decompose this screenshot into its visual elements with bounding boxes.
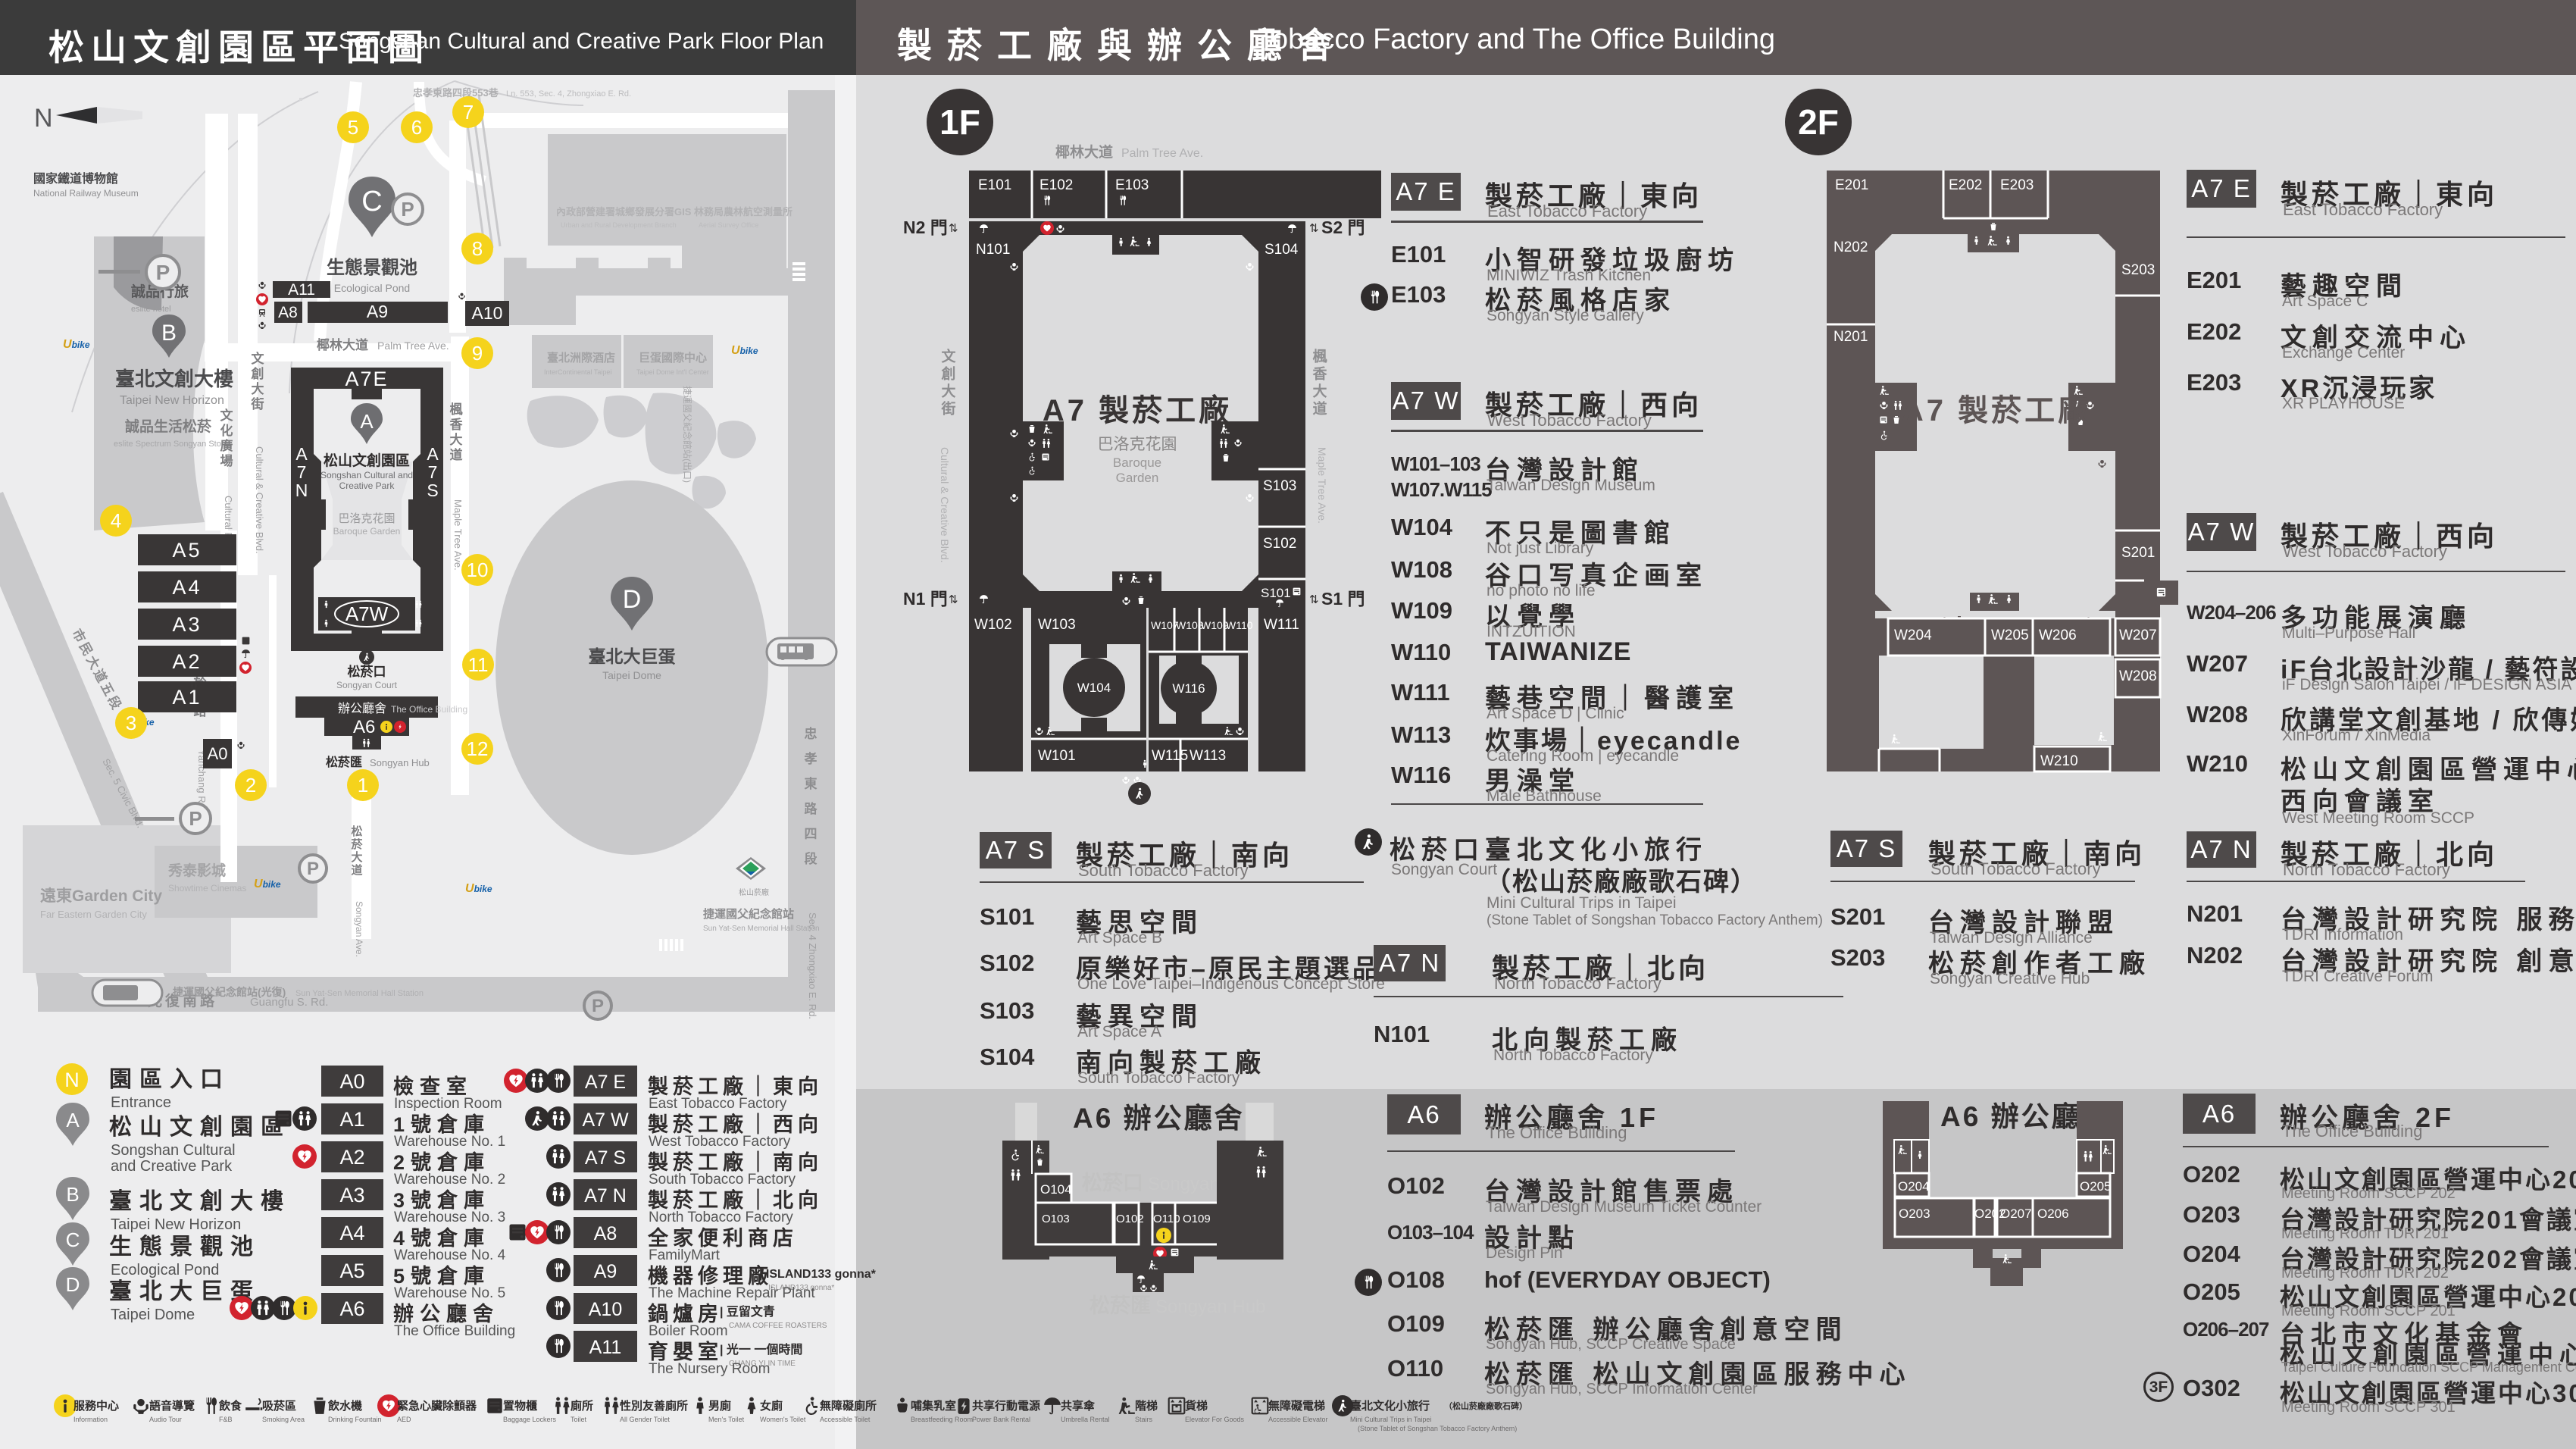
- svg-text:The Machine Repair Plant: The Machine Repair Plant: [649, 1285, 815, 1301]
- svg-text:Information: Information: [73, 1416, 108, 1423]
- svg-text:臺北文創大樓: 臺北文創大樓: [109, 1188, 291, 1214]
- svg-text:緊急心臟除顫器: 緊急心臟除顫器: [397, 1399, 477, 1413]
- svg-text:內政部營建署城鄉發展分署GIS: 內政部營建署城鄉發展分署GIS: [556, 206, 692, 218]
- svg-text:S203: S203: [2121, 262, 2155, 278]
- svg-text:InterContinental Taipei: InterContinental Taipei: [544, 368, 611, 376]
- svg-text:East Tobacco Factory: East Tobacco Factory: [649, 1096, 787, 1112]
- svg-text:廁所: 廁所: [571, 1399, 593, 1413]
- svg-text:A: A: [295, 444, 308, 464]
- svg-text:Ubike: Ubike: [731, 344, 758, 357]
- svg-text:Ubike: Ubike: [465, 882, 492, 895]
- svg-text:⇅: ⇅: [1309, 222, 1319, 235]
- svg-text:Mini Cultural Trips in Taipei: Mini Cultural Trips in Taipei: [1350, 1416, 1431, 1423]
- svg-text:A7 W: A7 W: [582, 1109, 629, 1131]
- svg-text:飲食: 飲食: [218, 1399, 242, 1413]
- svg-text:Women's Toilet: Women's Toilet: [760, 1416, 806, 1423]
- svg-text:Inspection Room: Inspection Room: [394, 1096, 502, 1112]
- svg-text:O204: O204: [1898, 1179, 1930, 1194]
- svg-text:椰林大道: 椰林大道: [317, 337, 368, 352]
- svg-text:A: A: [427, 444, 439, 464]
- svg-text:N: N: [64, 1069, 80, 1091]
- svg-text:(Stone Tablet of Songshan Toba: (Stone Tablet of Songshan Tobacco Factor…: [1358, 1425, 1517, 1432]
- svg-text:N101: N101: [976, 242, 1010, 258]
- svg-text:Toilet: Toilet: [571, 1416, 587, 1423]
- svg-text:服務中心: 服務中心: [73, 1399, 119, 1413]
- svg-text:P: P: [592, 996, 604, 1016]
- svg-text:West Tobacco Factory: West Tobacco Factory: [649, 1134, 791, 1150]
- svg-text:FamilyMart: FamilyMart: [649, 1247, 721, 1263]
- svg-text:P: P: [156, 261, 170, 284]
- svg-text:N1 門: N1 門: [903, 589, 948, 609]
- svg-text:3號倉庫: 3號倉庫: [393, 1188, 490, 1212]
- svg-text:Songyan Ave.: Songyan Ave.: [354, 901, 364, 957]
- svg-text:松菸大道: 松菸大道: [350, 825, 363, 877]
- svg-text:W109: W109: [1201, 619, 1229, 631]
- svg-text:W205: W205: [1991, 627, 2029, 643]
- svg-text:E101: E101: [978, 177, 1011, 193]
- svg-text:S: S: [427, 480, 438, 500]
- svg-text:N201: N201: [1834, 329, 1868, 345]
- svg-text:O110: O110: [1153, 1213, 1180, 1225]
- svg-text:A4: A4: [339, 1222, 364, 1244]
- svg-text:8: 8: [472, 237, 483, 260]
- svg-text:W204: W204: [1894, 627, 1932, 643]
- svg-text:哺集乳室: 哺集乳室: [911, 1399, 956, 1413]
- svg-text:2號倉庫: 2號倉庫: [393, 1150, 490, 1174]
- svg-text:E103: E103: [1115, 177, 1149, 193]
- svg-text:林務局農林航空測量所: 林務局農林航空測量所: [694, 206, 792, 218]
- svg-text:Baroque: Baroque: [1113, 455, 1161, 470]
- svg-text:共享行動電源: 共享行動電源: [972, 1399, 1040, 1413]
- svg-text:辦公廳舍: 辦公廳舍: [393, 1302, 499, 1325]
- svg-text:W108: W108: [1176, 619, 1204, 631]
- svg-text:Taipei Dome Int'l Center: Taipei Dome Int'l Center: [636, 368, 709, 376]
- svg-text:Stairs: Stairs: [1135, 1416, 1153, 1423]
- svg-text:生態景觀池: 生態景觀池: [109, 1234, 261, 1260]
- svg-text:Taipei Dome: Taipei Dome: [111, 1307, 195, 1323]
- svg-text:4號倉庫: 4號倉庫: [393, 1226, 490, 1250]
- svg-text:園區入口: 園區入口: [109, 1067, 230, 1092]
- svg-text:O205: O205: [2080, 1179, 2112, 1194]
- svg-text:⇅: ⇅: [949, 222, 958, 235]
- svg-text:O206: O206: [2037, 1206, 2069, 1221]
- svg-text:Songyan Hub: Songyan Hub: [1155, 1297, 1265, 1317]
- svg-text:女廁: 女廁: [760, 1399, 783, 1413]
- svg-text:忠孝東路四段553巷: 忠孝東路四段553巷: [413, 87, 499, 99]
- svg-text:Songyan Court: Songyan Court: [336, 680, 398, 690]
- svg-text:W113: W113: [1190, 748, 1226, 764]
- svg-text:巨蛋國際中心: 巨蛋國際中心: [639, 351, 707, 365]
- svg-text:無障礙廁所: 無障礙廁所: [820, 1399, 877, 1413]
- svg-text:誠品生活松菸: 誠品生活松菸: [125, 418, 212, 435]
- svg-text:A11: A11: [589, 1337, 622, 1358]
- svg-text:A7 製菸工廠: A7 製菸工廠: [1043, 393, 1232, 427]
- svg-text:O102: O102: [1116, 1213, 1144, 1225]
- svg-text:Songshan Cultural and: Songshan Cultural and: [320, 470, 413, 480]
- svg-text:Sun Yat-Sen Memorial Hall Stat: Sun Yat-Sen Memorial Hall Station: [703, 925, 820, 933]
- svg-text:性別友善廁所: 性別友善廁所: [620, 1399, 688, 1413]
- svg-text:eslite hotel: eslite hotel: [131, 305, 171, 314]
- svg-text:A9: A9: [594, 1261, 617, 1282]
- svg-text:Taipei Dome: Taipei Dome: [602, 669, 661, 681]
- svg-text:W102: W102: [974, 617, 1012, 633]
- svg-text:N202: N202: [1834, 239, 1868, 255]
- svg-text:辦公廳舍: 辦公廳舍: [338, 701, 386, 715]
- svg-text:A: A: [66, 1109, 80, 1131]
- svg-text:臺北文化小旅行: 臺北文化小旅行: [1350, 1399, 1430, 1413]
- svg-text:文化廣場: 文化廣場: [218, 408, 233, 469]
- svg-text:飲水機: 飲水機: [327, 1399, 362, 1413]
- svg-text:1號倉庫: 1號倉庫: [393, 1113, 490, 1136]
- svg-text:Accessible Toilet: Accessible Toilet: [820, 1416, 871, 1423]
- svg-text:臺北文創大樓: 臺北文創大樓: [115, 368, 233, 390]
- svg-text:Accessible Elevator: Accessible Elevator: [1268, 1416, 1328, 1423]
- svg-text:Audio Tour: Audio Tour: [149, 1416, 182, 1423]
- svg-text:A0: A0: [339, 1070, 364, 1093]
- svg-text:W207: W207: [2119, 627, 2157, 643]
- svg-text:Sun Yat-Sen Memorial Hall Stat: Sun Yat-Sen Memorial Hall Station: [295, 989, 424, 998]
- svg-text:C: C: [361, 186, 382, 218]
- svg-text:全家便利商店: 全家便利商店: [647, 1226, 798, 1250]
- svg-text:A7 製菸工廠: A7 製菸工廠: [1902, 393, 2091, 427]
- svg-text:F&B: F&B: [219, 1416, 233, 1423]
- svg-text:A: A: [360, 410, 374, 433]
- svg-text:S102: S102: [1263, 536, 1296, 552]
- svg-text:秀泰影城: 秀泰影城: [167, 862, 226, 879]
- svg-text:W101: W101: [1038, 748, 1076, 764]
- svg-text:製菸工廠｜南向: 製菸工廠｜南向: [648, 1150, 823, 1174]
- svg-text:Umbrella Rental: Umbrella Rental: [1061, 1416, 1110, 1423]
- svg-text:W107: W107: [1151, 619, 1179, 631]
- svg-text:遠東Garden City: 遠東Garden City: [40, 887, 162, 905]
- svg-text:W116: W116: [1172, 681, 1205, 696]
- svg-text:D: D: [623, 585, 642, 614]
- svg-text:O104: O104: [1040, 1182, 1072, 1197]
- svg-text:Palm Tree Ave.: Palm Tree Ave.: [1121, 147, 1203, 160]
- svg-text:Baggage Lockers: Baggage Lockers: [503, 1416, 557, 1423]
- svg-text:P: P: [307, 859, 319, 879]
- svg-text:Ecological Pond: Ecological Pond: [111, 1262, 219, 1278]
- svg-text:楓香大道: 楓香大道: [1311, 348, 1328, 418]
- svg-text:捷運國父紀念館站(出口): 捷運國父紀念館站(出口): [682, 386, 693, 483]
- svg-text:S201: S201: [2121, 545, 2155, 561]
- svg-text:B: B: [66, 1183, 79, 1206]
- svg-text:A3: A3: [339, 1184, 364, 1206]
- svg-text:B: B: [161, 321, 177, 346]
- svg-text:Far Eastern Garden City: Far Eastern Garden City: [40, 909, 147, 920]
- svg-text:忠孝東路四段: 忠孝東路四段: [802, 726, 818, 877]
- svg-text:Taipei New Horizon: Taipei New Horizon: [111, 1216, 241, 1233]
- svg-text:椰林大道: 椰林大道: [1055, 143, 1113, 161]
- svg-text:N2 門: N2 門: [903, 218, 948, 237]
- svg-text:捷運國父紀念館站: 捷運國父紀念館站: [703, 907, 794, 921]
- svg-text:O109: O109: [1183, 1213, 1211, 1225]
- svg-text:生態景觀池: 生態景觀池: [327, 257, 417, 278]
- svg-text:1: 1: [358, 774, 368, 796]
- svg-text:W115: W115: [1152, 748, 1188, 764]
- svg-text:11: 11: [468, 653, 489, 676]
- svg-text:檢查室: 檢查室: [393, 1075, 473, 1098]
- svg-text:Cultural & Creative Blvd.: Cultural & Creative Blvd.: [939, 447, 951, 563]
- svg-text:National Railway Museum: National Railway Museum: [33, 188, 139, 199]
- svg-text:Drinking Fountain: Drinking Fountain: [328, 1416, 382, 1423]
- svg-text:A2: A2: [339, 1146, 364, 1169]
- svg-text:臺北洲際酒店: 臺北洲際酒店: [547, 351, 615, 365]
- svg-text:Urban and Rural Development Br: Urban and Rural Development Branch: [561, 221, 677, 229]
- svg-text:Ecological Pond: Ecological Pond: [334, 282, 410, 294]
- svg-text:松山文創園區: 松山文創園區: [109, 1114, 291, 1140]
- svg-text:A2: A2: [172, 650, 202, 673]
- svg-text:製菸工廠｜東向: 製菸工廠｜東向: [648, 1075, 823, 1098]
- svg-text:A10: A10: [472, 303, 503, 323]
- svg-text:CAMA COFFEE ROASTERS: CAMA COFFEE ROASTERS: [729, 1322, 827, 1330]
- svg-text:2: 2: [245, 774, 256, 796]
- svg-text:W104: W104: [1077, 681, 1111, 695]
- svg-text:貨梯: 貨梯: [1185, 1399, 1208, 1413]
- svg-text:P: P: [401, 198, 414, 221]
- svg-text:A6: A6: [339, 1297, 364, 1320]
- svg-text:A3: A3: [172, 613, 202, 636]
- svg-text:6: 6: [411, 116, 422, 139]
- svg-text:Ln. 553, Sec. 4, Zhongxiao E.: Ln. 553, Sec. 4, Zhongxiao E. Rd.: [506, 89, 631, 99]
- svg-text:松菸匯: 松菸匯: [326, 755, 362, 769]
- svg-text:語音導覽: 語音導覽: [149, 1399, 195, 1413]
- svg-text:E102: E102: [1039, 177, 1073, 193]
- svg-text:吸菸區: 吸菸區: [262, 1399, 296, 1413]
- svg-text:E203: E203: [2000, 177, 2034, 193]
- svg-text:Palm Tree Ave.: Palm Tree Ave.: [377, 340, 449, 352]
- svg-text:A10: A10: [589, 1299, 622, 1320]
- svg-text:N: N: [34, 104, 53, 133]
- svg-text:A11: A11: [288, 281, 315, 299]
- svg-text:O103: O103: [1042, 1213, 1070, 1225]
- svg-text:W111: W111: [1264, 617, 1299, 633]
- svg-text:A7 N: A7 N: [584, 1185, 627, 1206]
- svg-text:5: 5: [348, 116, 358, 139]
- svg-text:7: 7: [428, 462, 438, 482]
- svg-text:The Office Building: The Office Building: [394, 1323, 515, 1339]
- svg-text:A6 辦公廳舍: A6 辦公廳舍: [1073, 1102, 1245, 1134]
- svg-text:N: N: [295, 480, 308, 500]
- svg-text:S104: S104: [1265, 242, 1299, 258]
- svg-text:North Tobacco Factory: North Tobacco Factory: [649, 1210, 793, 1225]
- svg-text:Showtime Cinemas: Showtime Cinemas: [168, 883, 246, 893]
- svg-text:Warehouse No. 5: Warehouse No. 5: [394, 1285, 505, 1301]
- svg-text:Power Bank Rental: Power Bank Rental: [972, 1416, 1030, 1423]
- svg-text:South Tobacco Factory: South Tobacco Factory: [649, 1172, 796, 1188]
- svg-text:A7 E: A7 E: [585, 1072, 626, 1093]
- svg-text:W210: W210: [2040, 753, 2078, 769]
- svg-text:Warehouse No. 1: Warehouse No. 1: [394, 1134, 505, 1150]
- svg-text:Cultural & Creative Blvd.: Cultural & Creative Blvd.: [254, 446, 265, 554]
- svg-text:A5: A5: [172, 539, 202, 562]
- svg-text:| ISLAND133 gonna*: | ISLAND133 gonna*: [759, 1268, 877, 1281]
- svg-text:7: 7: [297, 462, 307, 482]
- svg-text:Entrance: Entrance: [111, 1094, 171, 1111]
- svg-text:A9: A9: [367, 302, 388, 321]
- svg-text:The Nursery Room: The Nursery Room: [649, 1361, 771, 1377]
- svg-text:Breastfeeding Room: Breastfeeding Room: [911, 1416, 973, 1423]
- svg-text:and Creative Park: and Creative Park: [111, 1158, 233, 1175]
- svg-text:Taipei New Horizon: Taipei New Horizon: [120, 394, 224, 407]
- svg-text:A4: A4: [172, 576, 202, 599]
- svg-text:Ubike: Ubike: [63, 338, 90, 351]
- svg-text:Aerial Survey Office: Aerial Survey Office: [699, 221, 758, 229]
- svg-text:巴洛克花園: 巴洛克花園: [338, 512, 395, 525]
- svg-text:⇅: ⇅: [949, 593, 958, 606]
- svg-text:Warehouse No. 4: Warehouse No. 4: [394, 1247, 506, 1263]
- svg-text:Ubike: Ubike: [254, 878, 281, 890]
- svg-text:Creative Park: Creative Park: [339, 480, 395, 491]
- svg-text:階梯: 階梯: [1135, 1399, 1158, 1413]
- svg-text:A7 S: A7 S: [585, 1147, 626, 1169]
- svg-text:All Gender Toilet: All Gender Toilet: [620, 1416, 670, 1423]
- svg-text:Warehouse No. 2: Warehouse No. 2: [394, 1172, 505, 1188]
- svg-text:Warehouse No. 3: Warehouse No. 3: [394, 1210, 505, 1225]
- svg-text:S103: S103: [1263, 478, 1296, 494]
- svg-text:製菸工廠｜北向: 製菸工廠｜北向: [648, 1188, 823, 1212]
- svg-text:AED: AED: [397, 1416, 411, 1423]
- svg-text:無障礙電梯: 無障礙電梯: [1268, 1399, 1325, 1413]
- svg-text:Maple Tree Ave.: Maple Tree Ave.: [452, 499, 464, 571]
- svg-text:7: 7: [463, 101, 474, 124]
- svg-text:松山文創園區: 松山文創園區: [324, 452, 410, 469]
- svg-text:Smoking Area: Smoking Area: [262, 1416, 305, 1423]
- svg-text:D: D: [66, 1273, 80, 1296]
- svg-text:A7W: A7W: [345, 602, 389, 625]
- svg-text:S2 門: S2 門: [1321, 218, 1365, 237]
- svg-text:W206: W206: [2039, 627, 2077, 643]
- svg-text:（松山菸廠廠歌石碑）: （松山菸廠廠歌石碑）: [1444, 1400, 1527, 1411]
- svg-text:O203: O203: [1899, 1206, 1930, 1221]
- svg-text:置物櫃: 置物櫃: [503, 1399, 537, 1413]
- svg-text:W103: W103: [1038, 617, 1076, 633]
- svg-text:E202: E202: [1949, 177, 1982, 193]
- svg-text:捷運國父紀念館站(光復): 捷運國父紀念館站(光復): [173, 986, 286, 998]
- svg-text:文創大街: 文創大街: [249, 351, 265, 412]
- svg-text:5號倉庫: 5號倉庫: [393, 1264, 490, 1288]
- svg-text:Maple Tree Ave.: Maple Tree Ave.: [1316, 447, 1328, 524]
- svg-text:臺北大巨蛋: 臺北大巨蛋: [589, 646, 676, 666]
- svg-text:A0: A0: [208, 744, 228, 763]
- svg-text:O207: O207: [2000, 1206, 2032, 1221]
- svg-text:| 豆留文青: | 豆留文青: [720, 1304, 775, 1319]
- svg-text:育嬰室: 育嬰室: [648, 1340, 723, 1363]
- svg-text:製菸工廠｜西向: 製菸工廠｜西向: [648, 1113, 823, 1136]
- svg-text:4: 4: [111, 509, 121, 532]
- svg-text:S101: S101: [1261, 586, 1291, 600]
- svg-text:12: 12: [467, 737, 489, 760]
- svg-text:機器修理廠: 機器修理廠: [648, 1264, 773, 1288]
- svg-text:男廁: 男廁: [708, 1399, 731, 1413]
- svg-text:W208: W208: [2119, 668, 2157, 684]
- svg-text:松菸匯: 松菸匯: [1089, 1294, 1151, 1317]
- svg-text:巴洛克花園: 巴洛克花園: [1098, 436, 1177, 453]
- svg-text:W110: W110: [1226, 619, 1253, 631]
- svg-text:共享傘: 共享傘: [1061, 1399, 1096, 1413]
- svg-text:Songshan Cultural: Songshan Cultural: [111, 1142, 236, 1159]
- svg-text:鍋爐房: 鍋爐房: [648, 1302, 723, 1325]
- svg-text:S1 門: S1 門: [1321, 589, 1365, 609]
- svg-text:Boiler Room: Boiler Room: [649, 1323, 728, 1339]
- svg-text:Elevator For Goods: Elevator For Goods: [1185, 1416, 1245, 1423]
- svg-text:C: C: [66, 1228, 80, 1251]
- svg-text:E201: E201: [1835, 177, 1868, 193]
- svg-text:P: P: [189, 807, 202, 830]
- svg-text:Baroque Garden: Baroque Garden: [333, 526, 401, 537]
- svg-text:松山菸廠: 松山菸廠: [739, 887, 769, 897]
- svg-text:9: 9: [472, 342, 483, 365]
- svg-text:3: 3: [126, 712, 136, 734]
- svg-text:A8: A8: [278, 304, 298, 321]
- svg-text:國家鐵道博物館: 國家鐵道博物館: [33, 171, 118, 186]
- svg-text:A1: A1: [172, 686, 202, 709]
- svg-text:Men's Toilet: Men's Toilet: [708, 1416, 745, 1423]
- svg-text:A6: A6: [353, 717, 375, 737]
- svg-text:Garden: Garden: [1116, 471, 1159, 485]
- svg-text:A7E: A7E: [345, 368, 388, 390]
- svg-text:A5: A5: [339, 1260, 364, 1282]
- svg-text:A1: A1: [339, 1108, 364, 1131]
- svg-text:The Office Building: The Office Building: [391, 704, 467, 715]
- svg-text:松菸口: 松菸口: [348, 664, 386, 679]
- svg-text:A8: A8: [594, 1223, 617, 1244]
- svg-text:| 光一 一個時間: | 光一 一個時間: [720, 1342, 802, 1357]
- svg-text:文創大街: 文創大街: [939, 348, 957, 418]
- svg-text:⇅: ⇅: [1309, 593, 1319, 606]
- svg-text:eslite Spectrum Songyan Store: eslite Spectrum Songyan Store: [114, 440, 229, 449]
- svg-text:Songyan Hub: Songyan Hub: [370, 757, 430, 768]
- svg-text:楓香大道: 楓香大道: [448, 402, 463, 463]
- svg-text:10: 10: [467, 559, 489, 581]
- svg-text:松菸口: 松菸口: [1082, 1172, 1143, 1194]
